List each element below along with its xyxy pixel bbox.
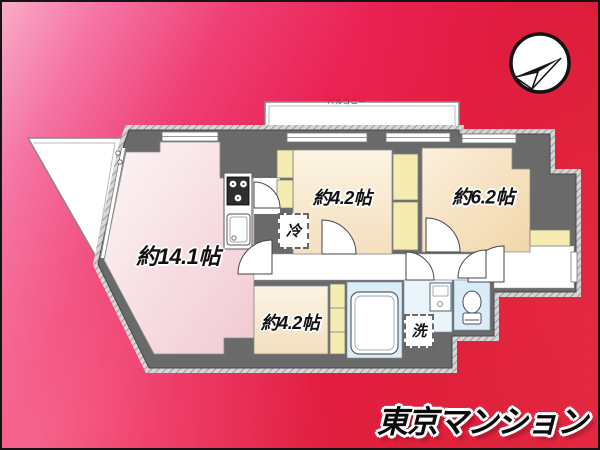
shoe-cabinet — [530, 230, 570, 246]
room-label-ldk: 約14.1帖 — [136, 246, 220, 268]
compass-icon — [511, 34, 569, 92]
room-label-bedroom-lower: 約4.2帖 — [261, 314, 320, 332]
room-label-bedroom-top: 約4.2帖 — [313, 189, 372, 207]
balcony-label: バルコニー — [327, 97, 367, 107]
brand-logo: 東京マンション — [377, 407, 587, 438]
washer-space: 洗 — [404, 314, 434, 348]
closet-center-2 — [393, 202, 418, 250]
kitchen-unit — [224, 173, 252, 249]
floorplan-image: バルコニー 約14.1帖 約4.2帖 約6.2帖 約4.2帖 冷 洗 東京マンシ… — [0, 0, 600, 450]
room-label-bedroom-right: 約6.2帖 — [452, 189, 514, 208]
entry-door — [571, 252, 577, 282]
closet-center-1 — [393, 154, 418, 200]
closet-lower — [330, 284, 345, 354]
bathtub — [351, 292, 398, 354]
closet-top-left-1 — [277, 150, 293, 178]
toilet — [463, 291, 481, 324]
vanity-unit — [430, 283, 451, 311]
refrigerator-space: 冷 — [278, 213, 309, 249]
